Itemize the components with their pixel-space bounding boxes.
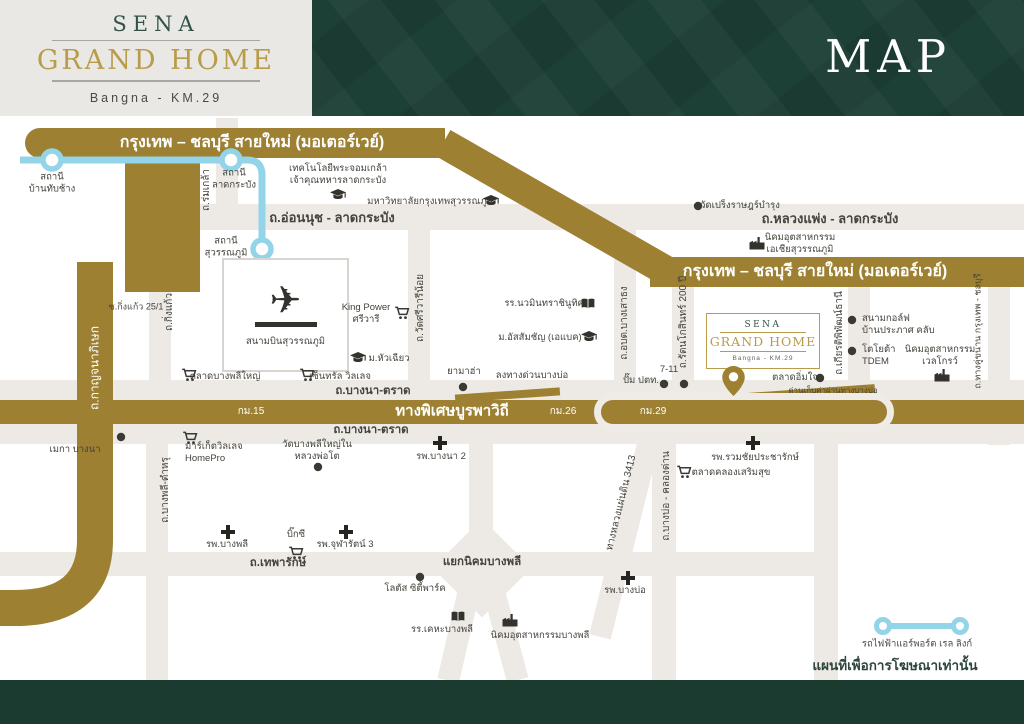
poi-bangbo-hospital: รพ.บางบ่อ xyxy=(604,585,646,597)
dot-icon xyxy=(314,463,323,472)
poi-talad-soemsuk: ตลาดคลองเสริมสุข xyxy=(692,467,771,479)
poi-bangna2-hospital: รพ.บางนา 2 xyxy=(416,451,466,463)
factory-icon xyxy=(935,369,950,382)
station-ban-thap-chang: สถานี บ้านทับช้าง xyxy=(29,172,76,197)
dot-icon xyxy=(117,433,126,442)
station-lat-krabang: สถานี ลาดกระบัง xyxy=(212,168,256,193)
expressway-label: ทางพิเศษบูรพาวิถี xyxy=(395,403,508,422)
logo-panel: SENA GRAND HOME Bangna - KM.29 xyxy=(0,0,312,116)
road-onnut: ถ.อ่อนนุช - ลาดกระบัง xyxy=(269,210,394,226)
poi-wat-bangphli-yai-nai: วัดบางพลีใหญ่ใน หลวงพ่อโต xyxy=(282,439,352,463)
motorway-label-top: กรุงเทพ – ชลบุรี สายใหม่ (มอเตอร์เวย์) xyxy=(120,133,384,153)
map-disclaimer: แผนที่เพื่อการโฆษณาเท่านั้น xyxy=(812,654,977,676)
road-rattanakosin-200: ถ.รัตนโกสินทร์ 200 ปี xyxy=(678,276,691,368)
logo-name: GRAND HOME xyxy=(37,45,275,76)
dot-icon xyxy=(680,380,689,389)
page-title: MAP xyxy=(825,30,952,83)
project-location: Bangna - KM.29 xyxy=(733,355,794,362)
poi-mega-bangna: เมกา บางนา xyxy=(49,444,100,456)
dot-icon xyxy=(416,573,425,582)
book-icon xyxy=(451,612,465,623)
soi-kingkaeo: ซ.กิ่งแก้ว 25/1 xyxy=(109,301,164,312)
poi-ptt: ปั๊ม ปตท. xyxy=(623,375,659,387)
school-icon xyxy=(350,352,366,364)
location-pin-icon xyxy=(722,366,745,396)
poi-talad-bangphli-yai: ตลาดบางพลีใหญ่ xyxy=(190,371,261,383)
suvarnabhumi-airport-box: ✈ สนามบินสุวรรณภูมิ xyxy=(222,258,349,372)
road-parallel-bkk-chonburi: ถ.ทางคู่ขนาน กรุงเทพ - ชลบุรี xyxy=(972,273,983,388)
project-rule-bottom xyxy=(720,351,806,352)
factory-icon xyxy=(503,614,518,627)
poi-ruamchai-pracharak-hospital: รพ.รวมชัยประชารักษ์ xyxy=(711,452,799,464)
airplane-icon: ✈ xyxy=(270,282,302,320)
poi-nawamin-school: รร.นวมินทราชินูทิศ xyxy=(504,298,583,310)
school-icon xyxy=(483,195,499,207)
road-luangphaeng: ถ.หลวงแพ่ง - ลาดกระบัง xyxy=(762,211,899,227)
legend-rail-dot-left xyxy=(874,617,892,635)
toll-bangbo: ด่านเก็บค่าผ่านทางบางบ่อ xyxy=(788,386,877,396)
poi-golf-club: สนามกอล์ฟ บ้านประภาศ คลับ xyxy=(862,313,935,337)
green-header: MAP xyxy=(312,0,1024,116)
poi-abac: ม.อัสสัมชัญ (เอแบค) xyxy=(498,332,581,344)
poi-bigc: บิ๊กซี xyxy=(287,529,305,541)
cart-icon xyxy=(395,306,410,320)
school-icon xyxy=(581,331,597,343)
km-29: กม.29 xyxy=(640,406,667,419)
logo-rule-bottom xyxy=(52,80,260,82)
road-east-vertical-band xyxy=(814,444,838,680)
dot-icon xyxy=(459,383,468,392)
station-marker-suvarnabhumi xyxy=(253,240,271,258)
logo-location: Bangna - KM.29 xyxy=(90,91,222,105)
airport-label: สนามบินสุวรรณภูมิ xyxy=(246,334,325,349)
cart-icon xyxy=(182,368,197,382)
school-icon xyxy=(330,189,346,201)
poi-7-11: 7-11 xyxy=(660,364,678,376)
project-name: GRAND HOME xyxy=(710,334,816,349)
motorway-label-right: กรุงเทพ – ชลบุรี สายใหม่ (มอเตอร์เวย์) xyxy=(683,262,947,282)
legend-rail-dot-right xyxy=(951,617,969,635)
cross-icon xyxy=(339,525,353,539)
poi-huachiew-univ: ม.หัวเฉียว xyxy=(368,353,409,365)
road-kanchanaphisek: ถ.กาญจนาภิเษก xyxy=(88,326,103,410)
airport-access-band xyxy=(125,155,200,292)
cross-icon xyxy=(621,571,635,585)
poi-chularat3-hospital: รพ.จุฬารัตน์ 3 xyxy=(316,539,373,551)
poi-king-power-sriwaree: King Power ศรีวารี xyxy=(342,302,391,326)
cart-icon xyxy=(183,431,198,445)
km-26: กม.26 xyxy=(550,406,577,419)
legend-rail-label: รถไฟฟ้าแอร์พอร์ต เรล ลิงก์ xyxy=(862,637,972,652)
poi-yamaha: ยามาฮ่า xyxy=(447,366,481,378)
factory-icon xyxy=(750,237,765,250)
runway-bar xyxy=(255,322,317,327)
cross-icon xyxy=(221,525,235,539)
logo-brand: SENA xyxy=(112,12,199,36)
page: ✈ สนามบินสุวรรณภูมิ SENA GRAND HOME Bang… xyxy=(0,0,1024,724)
poi-wat-preng: วัดเปร็งราษฎร์บำรุง xyxy=(700,200,780,212)
sena-grand-home-box: SENA GRAND HOME Bangna - KM.29 xyxy=(706,313,820,369)
dot-icon xyxy=(816,374,825,383)
road-bangna-trad-top: ถ.บางนา-ตราด xyxy=(335,384,410,398)
poi-toyota-tdem: โตโยต้า TDEM xyxy=(862,344,895,368)
logo-rule-top xyxy=(52,40,260,42)
cross-icon xyxy=(433,436,447,450)
cart-icon xyxy=(289,546,304,560)
poi-wellgrow-industrial: นิคมอุตสาหกรรม เวลโกรว์ xyxy=(905,344,976,368)
road-kiat-phiphat: ถ.เกียรติพิพัฒน์ธานี xyxy=(834,291,847,375)
road-bangbo-khlongdan: ถ.บางบ่อ - คลองด่าน xyxy=(661,451,674,541)
exit-bangbo: ลงทางด่วนบางบ่อ xyxy=(496,370,568,382)
station-suvarnabhumi: สถานี สุวรรณภูมิ xyxy=(205,236,248,261)
road-bangphli-tamru: ถ.บางพลี-ตำหรุ xyxy=(160,457,173,523)
poi-kmitl: เทคโนโลยีพระจอมเกล้า เจ้าคุณทหารลาดกระบั… xyxy=(289,163,387,187)
junction-nikhom-bangphli: แยกนิคมบางพลี xyxy=(443,555,521,569)
road-bangna-trad-bottom: ถ.บางนา-ตราด xyxy=(333,423,408,437)
poi-central-village: เซ็นทรัล วิลเลจ xyxy=(309,371,371,383)
project-brand: SENA xyxy=(744,320,781,330)
cart-icon xyxy=(677,465,692,479)
road-wat-si-wari-noi: ถ.วัดศรีวารีน้อย xyxy=(415,274,428,342)
dot-icon xyxy=(694,202,703,211)
road-obt-bang-sao-thong: ถ.อบต.บางเสาธง xyxy=(619,286,632,359)
poi-lotus-city-park: โลตัส ซิตี้พาร์ค xyxy=(384,583,445,595)
poi-bangkok-suvarnabhumi-univ: มหาวิทยาลัยกรุงเทพสุวรรณภูมิ xyxy=(367,196,493,208)
dot-icon xyxy=(848,347,857,356)
bottom-bar xyxy=(0,680,1024,724)
project-rule-top xyxy=(720,332,806,333)
dot-icon xyxy=(660,380,669,389)
km-15: กม.15 xyxy=(238,406,265,419)
poi-nikhom-bangphli-industrial: นิคมอุตสาหกรรมบางพลี xyxy=(491,630,590,642)
cart-icon xyxy=(300,368,315,382)
dot-icon xyxy=(848,316,857,325)
cross-icon xyxy=(746,436,760,450)
book-icon xyxy=(581,299,595,310)
legend-rail-line xyxy=(883,623,960,629)
poi-bangphli-hospital: รพ.บางพลี xyxy=(206,539,248,551)
poi-talad-imjai: ตลาดอิ่มใจ xyxy=(772,372,818,384)
road-kingkaeo: ถ.กิ่งแก้ว xyxy=(164,293,177,331)
poi-asia-industrial-estate: นิคมอุตสาหกรรม เอเชียสุวรรณภูมิ xyxy=(765,232,836,256)
poi-kheha-bangphli-school: รร.เคหะบางพลี xyxy=(411,624,473,636)
